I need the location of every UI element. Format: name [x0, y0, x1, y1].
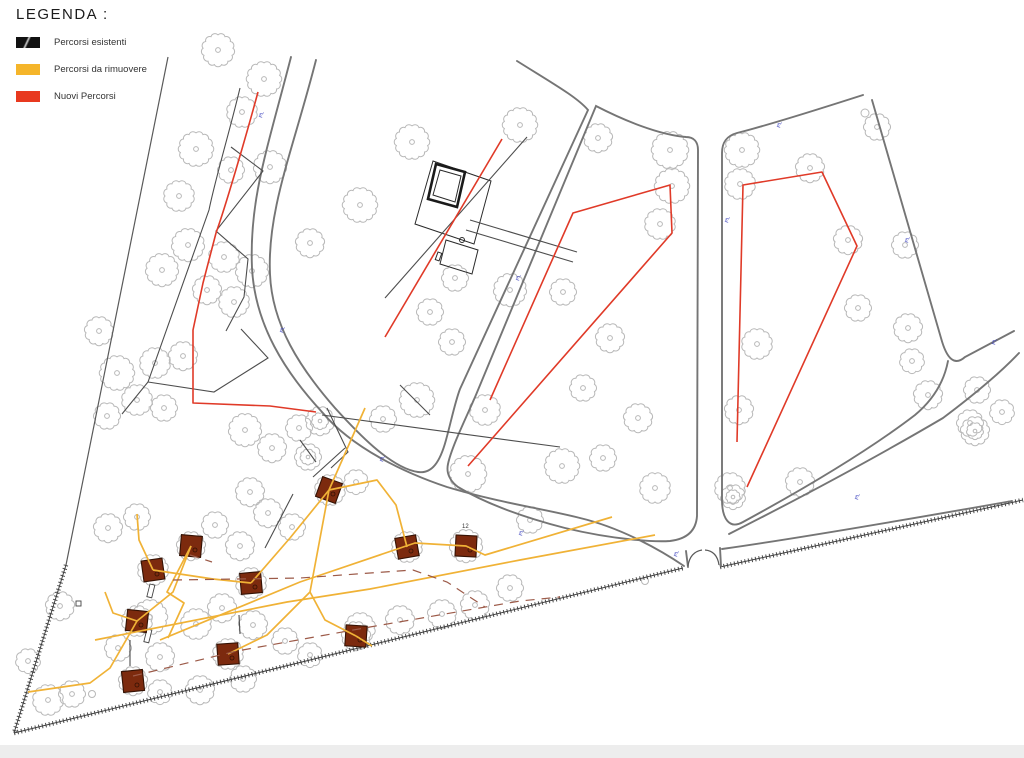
page-edge — [0, 745, 1024, 758]
legend-item-label: Percorsi esistenti — [54, 37, 126, 48]
tree-code-label: PL — [279, 326, 286, 334]
existing-paths-swatch-icon — [16, 37, 40, 48]
site-plan-drawing: PLPLPLPLPLPLPLPLPLPLPL12 — [0, 0, 1024, 758]
tree-code-label: PL — [904, 236, 911, 244]
tree-code-label: PL — [776, 121, 783, 129]
new-paths-layer — [193, 92, 857, 487]
roads-layer — [252, 57, 1019, 567]
legend-title: LEGENDA : — [16, 6, 147, 23]
plot-number-label: 12 — [462, 524, 469, 530]
annotations-layer: PLPLPLPLPLPLPLPLPLPLPL12 — [258, 111, 998, 558]
tree-code-label: PL — [258, 111, 265, 119]
legend-item-remove: Percorsi da rimuovere — [16, 64, 147, 75]
dashed-lines-layer — [133, 555, 560, 676]
legend-item-label: Nuovi Percorsi — [54, 91, 116, 102]
remove-paths-swatch-icon — [16, 64, 40, 75]
tree-code-label: PL — [515, 274, 522, 282]
legend-item-new: Nuovi Percorsi — [16, 91, 147, 102]
legend-item-existing: Percorsi esistenti — [16, 37, 147, 48]
tree-code-label: PL — [673, 550, 680, 558]
legend: LEGENDA : Percorsi esistenti Percorsi da… — [16, 6, 147, 118]
site-plan-page: PLPLPLPLPLPLPLPLPLPLPL12 LEGENDA : Perco… — [0, 0, 1024, 758]
tree-code-label: PL — [854, 493, 861, 501]
trees-layer — [16, 34, 1015, 716]
tree-code-label: PL — [724, 216, 731, 224]
tree-code-label: PL — [518, 529, 525, 537]
structure-square — [121, 669, 144, 692]
new-paths-swatch-icon — [16, 91, 40, 102]
legend-item-label: Percorsi da rimuovere — [54, 64, 147, 75]
